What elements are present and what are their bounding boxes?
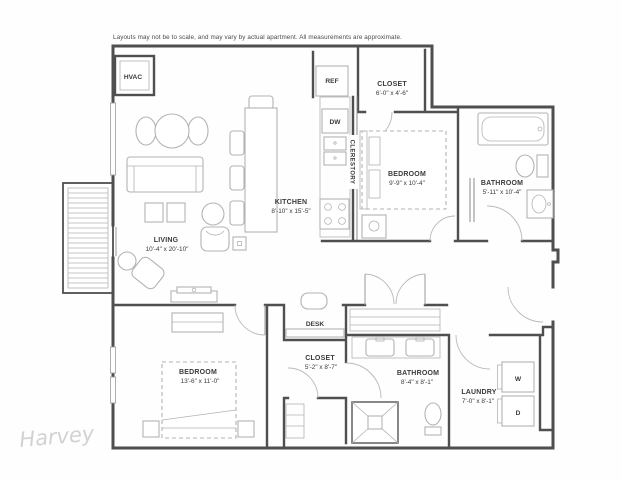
shower <box>352 402 398 443</box>
floorplan-svg: Layouts may not be to scale, and may var… <box>0 0 621 480</box>
coffee-table <box>145 203 163 222</box>
dresser <box>172 313 223 332</box>
linen-shelves <box>286 404 304 438</box>
hvac-label: HVAC <box>124 74 142 81</box>
room-dims-kitchen: 8'-10" x 15'-5" <box>271 208 310 215</box>
room-dims-closet-bottom: 5'-2" x 8'-7" <box>305 364 337 371</box>
dryer-label: D <box>516 410 521 417</box>
room-label-bathroom-bottom: BATHROOM <box>397 370 439 377</box>
room-label-laundry: LAUNDRY <box>461 389 496 396</box>
nightstand <box>238 421 254 437</box>
room-dims-bathroom-top: 5'-11" x 10'-4" <box>483 189 522 196</box>
armchair-right <box>201 203 229 251</box>
toilet-top <box>516 155 548 177</box>
room-label-closet-bottom: CLOSET <box>305 355 335 362</box>
pocket-door <box>470 178 474 222</box>
toilet-bottom <box>425 403 441 435</box>
kitchen-sink <box>324 137 346 165</box>
washer-label: W <box>515 376 522 383</box>
floorplan-page: Layouts may not be to scale, and may var… <box>0 0 621 480</box>
room-label-bedroom-bottom: BEDROOM <box>179 369 217 376</box>
stove <box>320 199 349 229</box>
clerestory-label: CLERESTORY <box>349 140 355 185</box>
sofa <box>127 157 203 192</box>
tv-console <box>171 287 217 302</box>
armchair-bottom <box>118 252 166 291</box>
room-label-closet-top: CLOSET <box>377 81 407 88</box>
room-dims-laundry: 7'-0" x 8'-1" <box>462 398 494 405</box>
room-dims-living: 10'-4" x 20'-10" <box>146 246 189 253</box>
hall-closet-shelves <box>350 309 440 331</box>
bathroom-bottom-fixtures <box>352 337 441 443</box>
vanity-top <box>527 190 553 218</box>
desk-surface <box>286 329 344 337</box>
dining-table <box>230 96 277 232</box>
coffee-table <box>167 203 185 222</box>
desk-chair <box>301 293 327 309</box>
watermark-signature: Harvey <box>18 421 95 452</box>
room-dims-closet-top: 6'-0" x 4'-6" <box>376 90 408 97</box>
room-dims-bedroom-bottom: 13'-6" x 11'-0" <box>181 378 220 385</box>
floor-outlet <box>233 237 246 250</box>
double-vanity <box>352 337 440 358</box>
desk-nook <box>286 293 344 337</box>
bathroom-top-fixtures <box>478 113 553 218</box>
balcony <box>63 183 113 293</box>
desk-label: DESK <box>306 321 325 328</box>
room-label-bedroom-top: BEDROOM <box>388 171 426 178</box>
room-label-bathroom-top: BATHROOM <box>481 180 523 187</box>
nightstand-top <box>362 215 386 238</box>
nightstand <box>143 421 159 437</box>
bathtub <box>478 113 548 145</box>
living-furniture <box>118 96 277 302</box>
disclaimer-text: Layouts may not be to scale, and may var… <box>113 34 402 41</box>
round-dining-table <box>136 114 208 148</box>
dw-label: DW <box>330 119 342 126</box>
ref-label: REF <box>325 78 338 85</box>
room-label-kitchen: KITCHEN <box>275 199 308 206</box>
room-dims-bedroom-top: 9'-9" x 10'-4" <box>389 180 425 187</box>
room-label-living: LIVING <box>154 237 179 244</box>
room-dims-bathroom-bottom: 8'-4" x 8'-1" <box>401 379 433 386</box>
